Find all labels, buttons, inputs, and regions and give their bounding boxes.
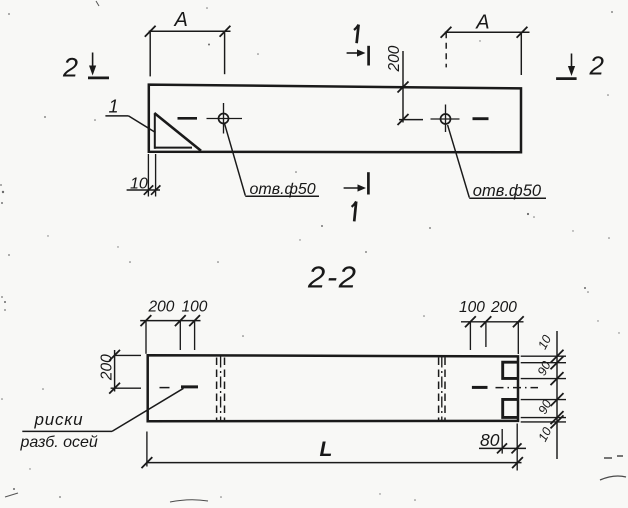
- svg-text:200: 200: [148, 298, 175, 315]
- svg-text:A: A: [475, 12, 489, 34]
- svg-text:200: 200: [386, 45, 403, 72]
- svg-text:2-2: 2-2: [307, 260, 358, 295]
- svg-text:разб. осей: разб. осей: [20, 434, 98, 451]
- svg-text:2: 2: [62, 52, 78, 82]
- svg-text:200: 200: [490, 299, 517, 316]
- svg-text:80: 80: [480, 430, 500, 450]
- svg-text:отв.ф50: отв.ф50: [250, 181, 316, 198]
- svg-text:100: 100: [459, 299, 485, 316]
- svg-text:L: L: [320, 438, 333, 461]
- svg-text:2: 2: [589, 51, 605, 81]
- svg-text:200: 200: [99, 354, 116, 381]
- svg-text:100: 100: [182, 298, 208, 315]
- svg-text:риски: риски: [34, 410, 84, 429]
- svg-text:10: 10: [535, 333, 554, 352]
- svg-text:A: A: [174, 9, 188, 31]
- svg-text:1: 1: [109, 97, 119, 117]
- svg-text:отв.ф50: отв.ф50: [473, 182, 542, 200]
- svg-text:90: 90: [535, 398, 554, 417]
- svg-text:10: 10: [130, 175, 148, 192]
